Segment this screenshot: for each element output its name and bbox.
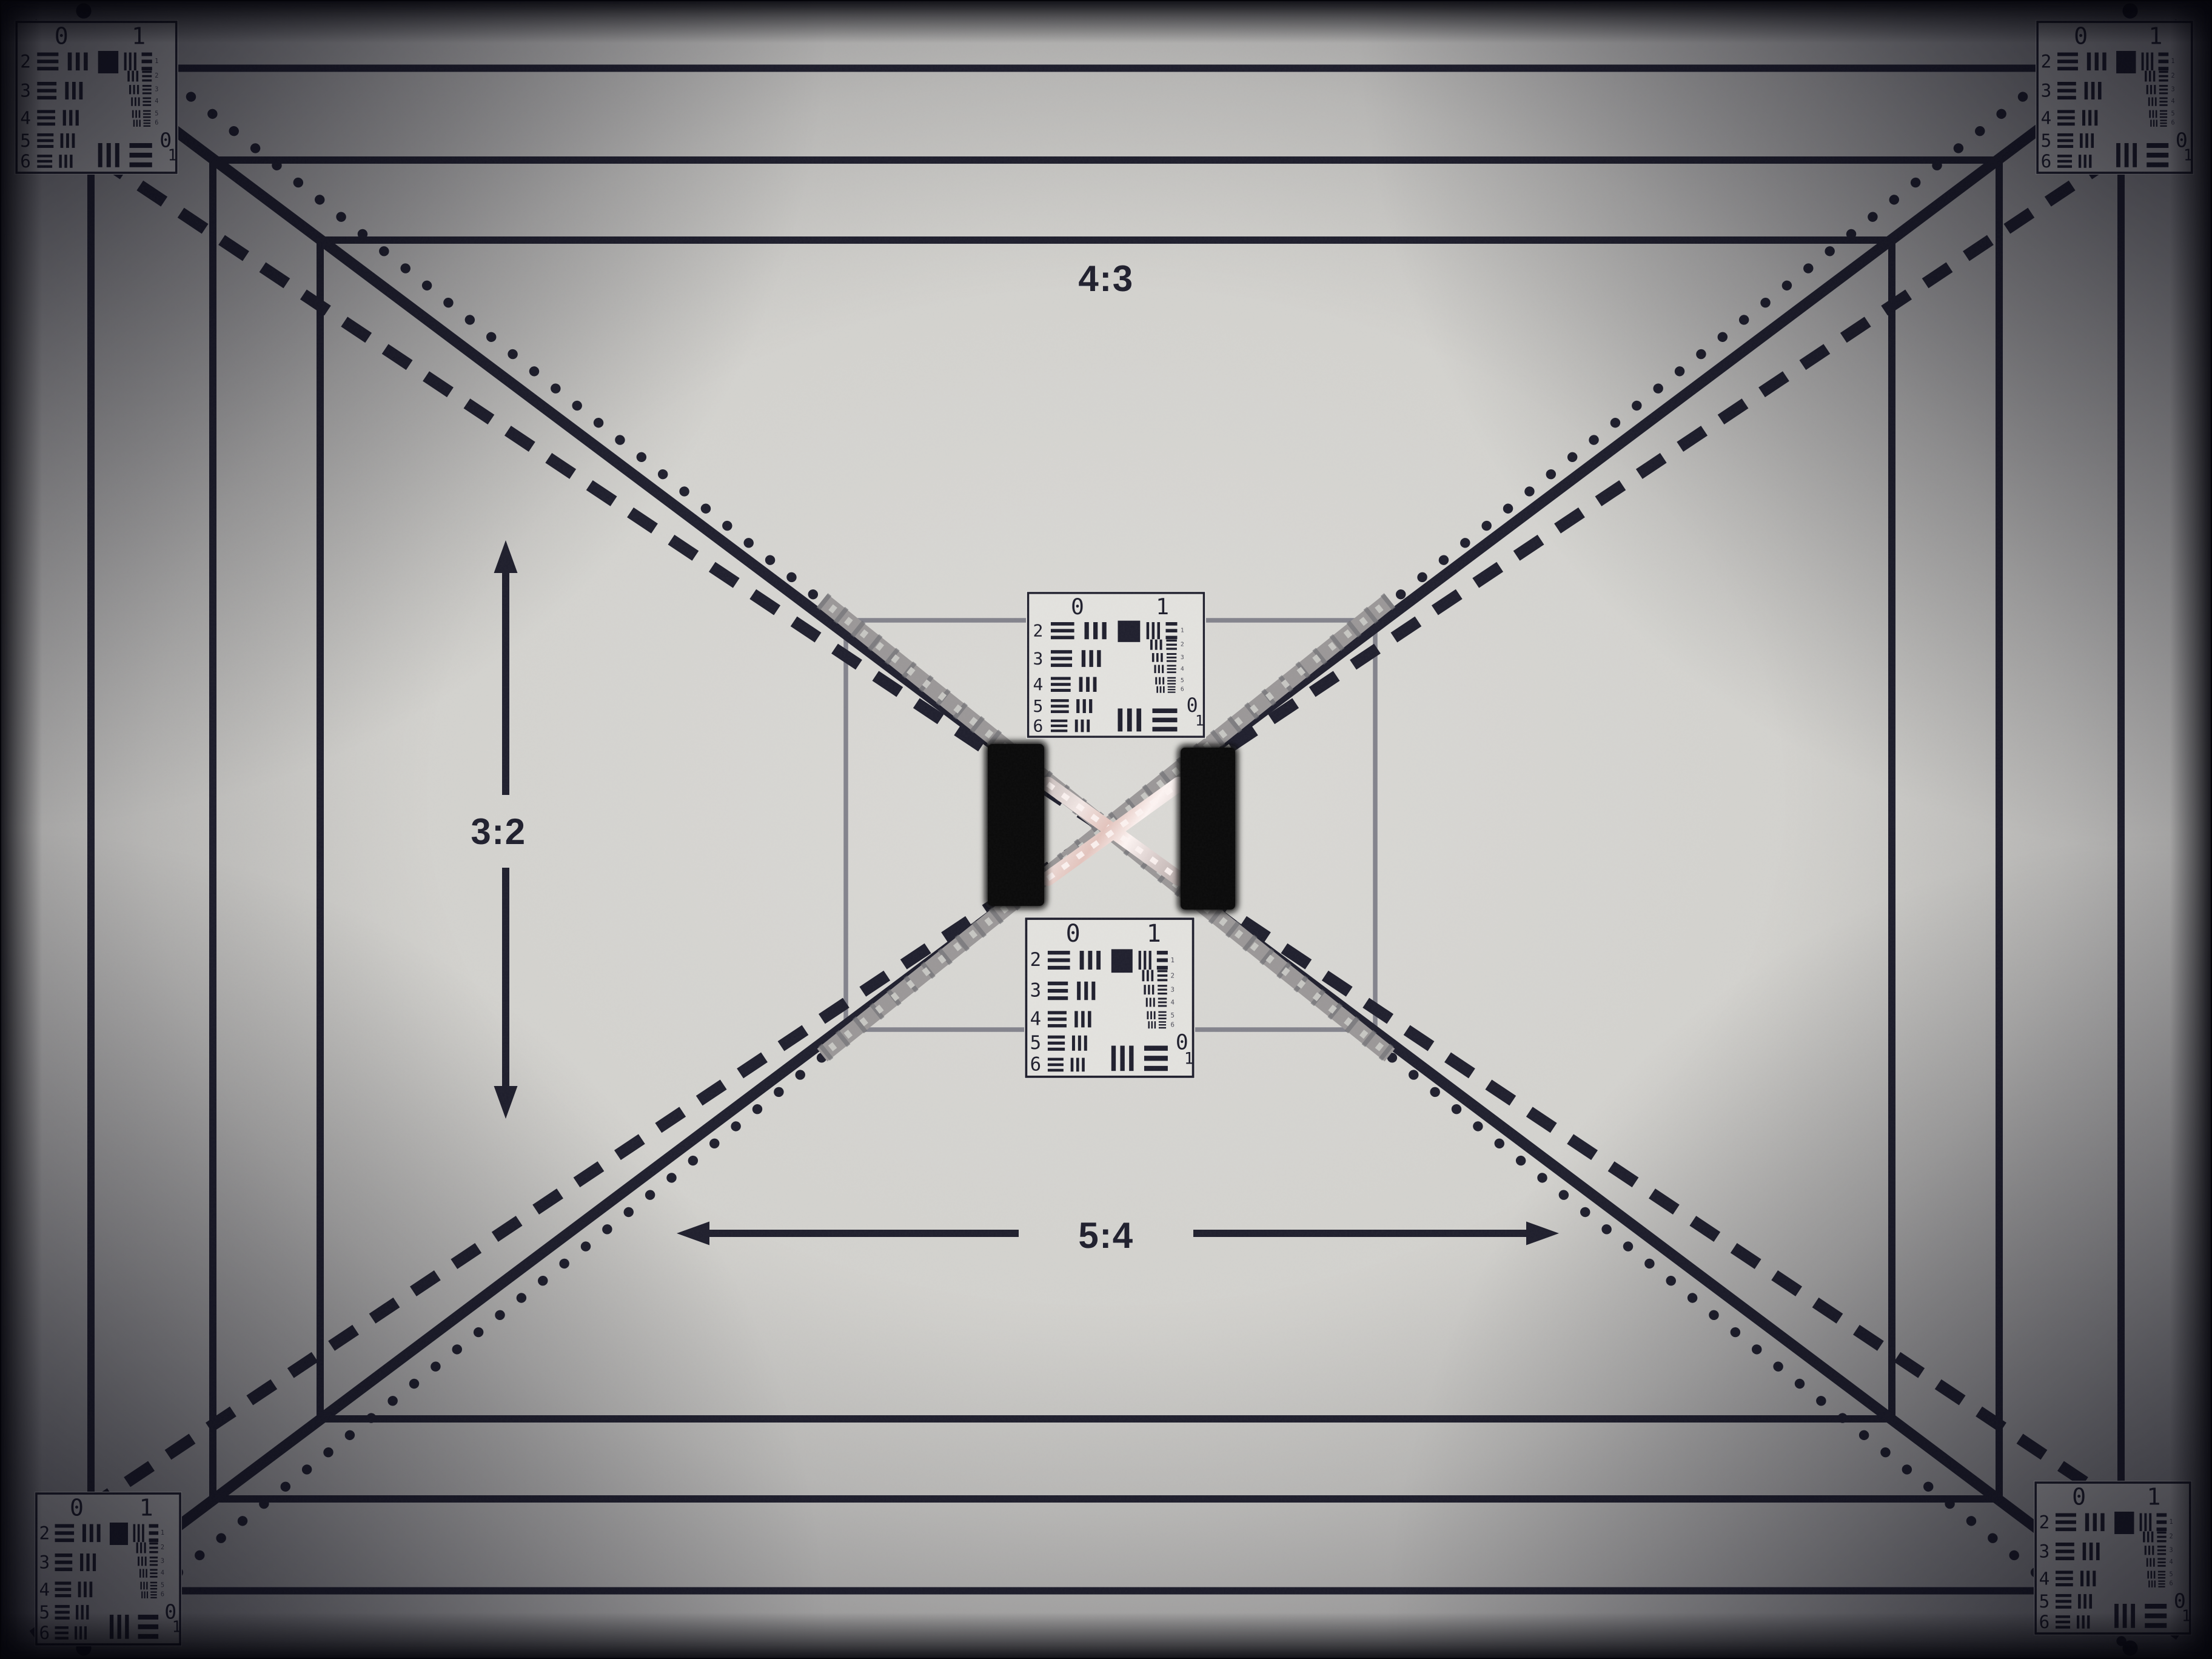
test-chart-photo: 4:3 3:2 5:4 0123456123456010123456123456…: [0, 0, 2212, 1659]
chart-canvas: 4:3 3:2 5:4 0123456123456010123456123456…: [0, 0, 2212, 1659]
photo-grain-overlay: [0, 0, 2212, 1659]
